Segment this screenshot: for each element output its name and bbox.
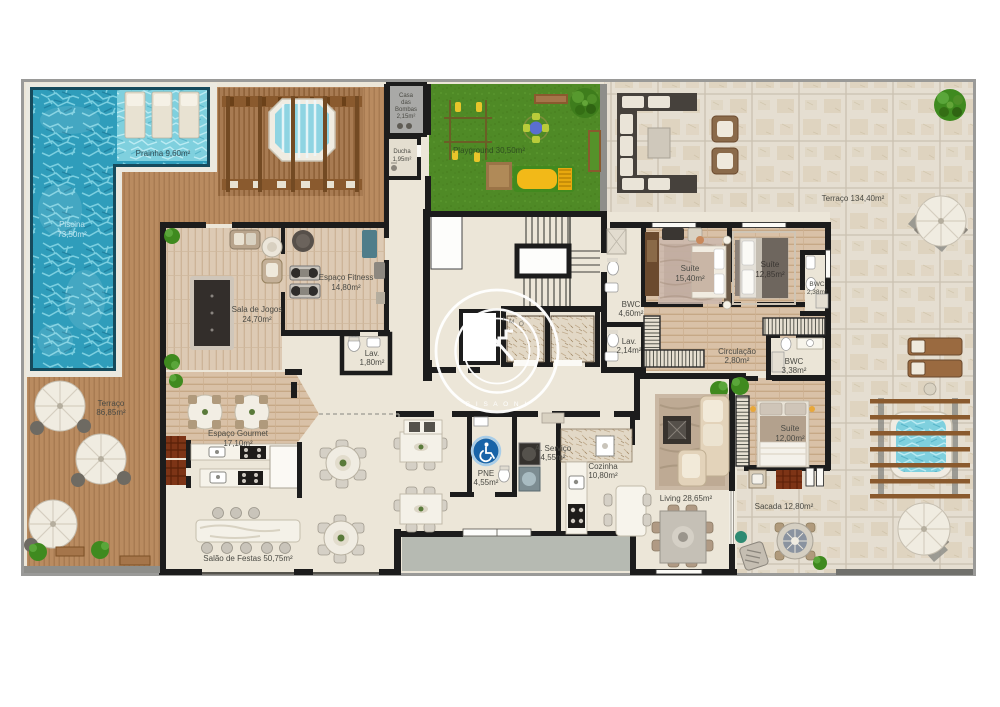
svg-text:B I S A O N I: B I S A O N I bbox=[466, 401, 529, 408]
svg-text:1,95m²: 1,95m² bbox=[393, 157, 412, 163]
svg-text:Suíte: Suíte bbox=[681, 264, 700, 273]
svg-text:14,80m²: 14,80m² bbox=[331, 283, 361, 292]
svg-text:2,15m²: 2,15m² bbox=[397, 114, 416, 120]
svg-text:Bombas: Bombas bbox=[395, 107, 417, 113]
svg-text:17,10m²: 17,10m² bbox=[223, 439, 253, 448]
svg-text:Sala de Jogos: Sala de Jogos bbox=[232, 305, 283, 314]
svg-text:Sacada 12,80m²: Sacada 12,80m² bbox=[755, 502, 814, 511]
svg-text:Suíte: Suíte bbox=[761, 260, 780, 269]
svg-text:Terraço: Terraço bbox=[98, 399, 125, 408]
svg-text:4,60m²: 4,60m² bbox=[619, 309, 644, 318]
svg-text:Terraço 134,40m²: Terraço 134,40m² bbox=[822, 194, 885, 203]
svg-text:Lav.: Lav. bbox=[365, 349, 380, 358]
svg-text:das: das bbox=[401, 100, 411, 106]
svg-text:Piscina: Piscina bbox=[59, 220, 85, 229]
svg-text:4,55m²: 4,55m² bbox=[474, 478, 499, 487]
svg-text:BWC: BWC bbox=[622, 300, 641, 309]
svg-text:2,80m²: 2,80m² bbox=[725, 356, 750, 365]
svg-text:Casa: Casa bbox=[399, 93, 414, 99]
svg-text:Ducha: Ducha bbox=[393, 149, 411, 155]
svg-text:Cozinha: Cozinha bbox=[588, 462, 618, 471]
svg-text:24,70m²: 24,70m² bbox=[242, 315, 272, 324]
svg-text:A. Serviço: A. Serviço bbox=[535, 444, 572, 453]
svg-text:15,40m²: 15,40m² bbox=[675, 274, 705, 283]
svg-text:12,00m²: 12,00m² bbox=[775, 434, 805, 443]
svg-text:12,85m²: 12,85m² bbox=[755, 270, 785, 279]
svg-text:86,85m²: 86,85m² bbox=[96, 408, 126, 417]
svg-text:73,50m²: 73,50m² bbox=[57, 230, 87, 239]
svg-text:Playground 30,50m²: Playground 30,50m² bbox=[453, 146, 525, 155]
svg-text:2,38m²: 2,38m² bbox=[807, 289, 828, 296]
svg-text:2,14m²: 2,14m² bbox=[617, 346, 642, 355]
svg-text:1,80m²: 1,80m² bbox=[360, 358, 385, 367]
svg-text:Lav.: Lav. bbox=[622, 337, 637, 346]
svg-text:10,80m²: 10,80m² bbox=[588, 471, 618, 480]
svg-text:Circulação: Circulação bbox=[718, 347, 756, 356]
svg-text:Living 28,65m²: Living 28,65m² bbox=[660, 494, 713, 503]
svg-text:Espaço Fitness: Espaço Fitness bbox=[319, 273, 374, 282]
svg-text:BWC: BWC bbox=[809, 281, 824, 288]
svg-text:3,38m²: 3,38m² bbox=[782, 366, 807, 375]
svg-text:Espaço Gourmet: Espaço Gourmet bbox=[208, 429, 269, 438]
svg-text:BWC: BWC bbox=[785, 357, 804, 366]
svg-text:Salão de Festas 50,75m²: Salão de Festas 50,75m² bbox=[203, 554, 293, 563]
svg-text:4,55m²: 4,55m² bbox=[541, 453, 566, 462]
svg-text:PNE: PNE bbox=[478, 469, 494, 478]
svg-text:Prainha 9,60m²: Prainha 9,60m² bbox=[136, 149, 191, 158]
svg-text:Suíte: Suíte bbox=[781, 424, 800, 433]
